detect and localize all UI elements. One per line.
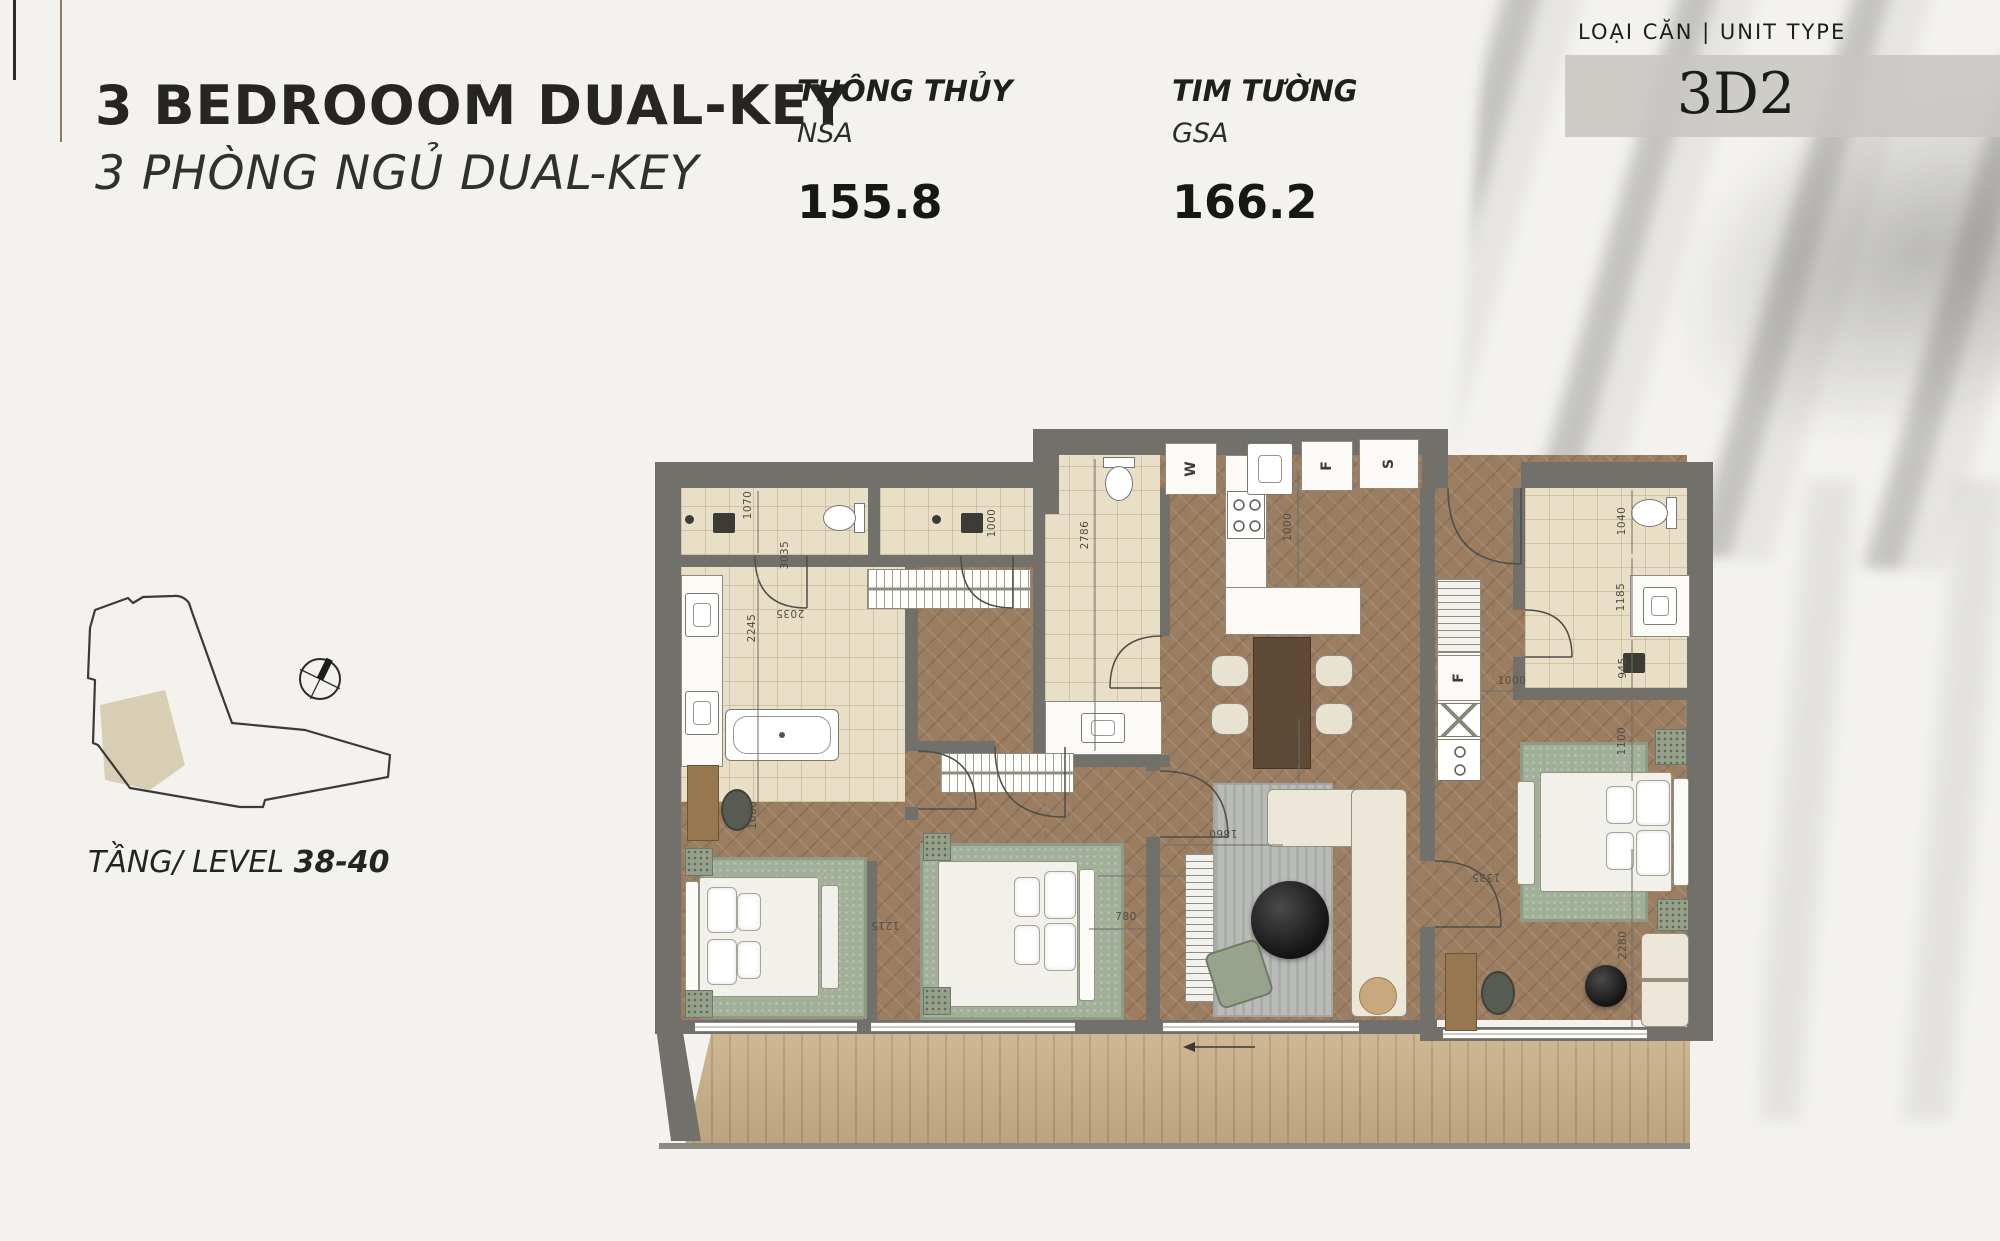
- desk: [1445, 953, 1477, 1031]
- bathtub: [725, 709, 839, 761]
- dimension-label: 2245: [746, 614, 758, 643]
- studio-fridge-label: F: [1451, 673, 1467, 683]
- pillow: [737, 941, 761, 979]
- ottoman: [1359, 977, 1397, 1015]
- balcony-railing: [659, 1143, 1690, 1149]
- metric-nsa-label: THÔNG THỦY: [797, 74, 1012, 108]
- fridge-label: F: [1319, 461, 1335, 471]
- bed-bedroom2: [938, 861, 1097, 1009]
- stove-burners: [1227, 491, 1265, 539]
- wall-bedroom2-living: [1146, 837, 1160, 1020]
- wall-bathroom3-right: [1160, 488, 1170, 636]
- toilet: [1103, 457, 1135, 501]
- sink-basin: [1643, 587, 1677, 625]
- dimension-label: 1550: [1290, 737, 1302, 766]
- sink-basin: [685, 691, 719, 735]
- bed-bedroom1: [685, 877, 839, 999]
- loveseat: [1641, 933, 1689, 1027]
- balcony-deck: [675, 1034, 1690, 1145]
- dining-chair: [1211, 703, 1249, 735]
- dimension-label: 3035: [779, 541, 791, 570]
- bathroom2-floor: [880, 488, 1033, 555]
- metric-nsa-code: NSA: [797, 118, 1012, 149]
- toilet: [1631, 497, 1677, 529]
- wall-bathroom3-left: [1033, 514, 1045, 755]
- floorplan-sheet: 3 BEDROOOM DUAL-KEY 3 PHÒNG NGỦ DUAL-KEY…: [0, 0, 2000, 1241]
- dimension-label: 780: [1115, 911, 1137, 923]
- shower-drain: [713, 513, 735, 533]
- stool: [1481, 971, 1515, 1015]
- bed-headboard: [1079, 869, 1095, 1001]
- pillow: [1044, 923, 1076, 971]
- pillow: [1014, 925, 1040, 965]
- wall-balcony-taper: [655, 1020, 701, 1141]
- decor-line-gold: [60, 0, 62, 142]
- compass-icon: [291, 650, 350, 709]
- kitchen-sink: [1247, 443, 1293, 495]
- bed-headboard: [1673, 778, 1689, 886]
- window-bedroom2: [871, 1022, 1075, 1032]
- nightstand: [1657, 899, 1689, 931]
- wall-studio-bath-left: [1513, 488, 1525, 610]
- metric-gsa-value: 166.2: [1172, 175, 1358, 229]
- window-bedroom1: [695, 1022, 857, 1032]
- pillow: [737, 893, 761, 931]
- storage-label: S: [1381, 459, 1397, 469]
- shower-head-icon: [932, 515, 941, 524]
- level-value: 38-40: [294, 845, 390, 880]
- kitchenette-burners: [1437, 739, 1481, 781]
- dimension-label: 1335: [1472, 871, 1501, 883]
- dimension-label: 1040: [1616, 507, 1628, 536]
- level-indicator: TẦNG/ LEVEL 38-40: [88, 845, 390, 880]
- metric-gsa-label: TIM TƯỜNG: [1172, 74, 1358, 108]
- nightstand: [1655, 729, 1687, 765]
- dimension-label: 2280: [1617, 931, 1629, 960]
- pillow: [1044, 871, 1076, 919]
- dimension-label: 1070: [742, 491, 754, 520]
- nightstand: [685, 990, 713, 1018]
- wall-top-left: [655, 462, 1035, 488]
- pillow: [707, 939, 737, 985]
- highlighted-unit-area: [100, 690, 185, 790]
- wall-bedroom2-top-a: [918, 741, 995, 753]
- dining-chair: [1211, 655, 1249, 687]
- kitchen-peninsula: [1225, 587, 1361, 635]
- unit-type-label: LOẠI CĂN | UNIT TYPE: [1578, 20, 1846, 44]
- bed-studio: [1540, 772, 1690, 894]
- wall-step-right: [1422, 429, 1448, 488]
- watercolor-brush-texture: [1760, 480, 2000, 1120]
- washer-label: W: [1183, 461, 1199, 476]
- dining-chair: [1315, 703, 1353, 735]
- unit-type-value: 3D2: [1661, 61, 1811, 127]
- dimension-label: 2035: [776, 607, 805, 619]
- building-keyplan: [55, 588, 400, 828]
- wall-bath-bottom: [681, 555, 1033, 567]
- wall-outer-left: [655, 462, 681, 1032]
- sink-basin: [685, 593, 719, 637]
- shower-head-icon: [685, 515, 694, 524]
- pillow: [1014, 877, 1040, 917]
- wall-dressing-stub: [905, 807, 918, 820]
- page-title: 3 BEDROOOM DUAL-KEY: [95, 74, 849, 137]
- nightstand: [923, 833, 951, 861]
- dimension-label: 1000: [986, 509, 998, 538]
- nightstand: [685, 848, 713, 876]
- page-subtitle: 3 PHÒNG NGỦ DUAL-KEY: [95, 146, 699, 201]
- wall-studio-left-lower: [1420, 927, 1435, 1029]
- pillow: [1636, 780, 1670, 826]
- coffee-table: [1251, 881, 1329, 959]
- bed-headboard: [685, 881, 699, 993]
- bed-bench: [821, 885, 839, 989]
- desk: [687, 765, 719, 841]
- dining-table: [1253, 637, 1311, 769]
- pillow: [1636, 830, 1670, 876]
- shower-drain: [961, 513, 983, 533]
- window-living: [1163, 1022, 1359, 1032]
- dimension-label: 2786: [1079, 521, 1091, 550]
- dimension-label: 1215: [871, 919, 900, 931]
- dimension-label: 1000: [1282, 513, 1294, 542]
- dimension-label: 945: [1617, 657, 1629, 679]
- kitchenette-sink: [1437, 703, 1481, 737]
- ac-ledge-shaft: [1185, 853, 1215, 1003]
- bedroom2-closet: [940, 753, 1074, 793]
- floor-plan: 1070 2245 2035 1000 2786 1000 1040 1185 …: [655, 429, 1715, 1151]
- pillow: [707, 887, 737, 933]
- level-label: TẦNG/ LEVEL: [88, 845, 294, 880]
- dimension-label: 1860: [1209, 827, 1238, 839]
- metric-gsa-code: GSA: [1172, 118, 1358, 149]
- pillow: [1606, 832, 1634, 870]
- wardrobe-closet: [867, 569, 1031, 609]
- dimension-label: 1680: [747, 801, 759, 830]
- pantry-shelves: [1437, 579, 1481, 653]
- bed-bench: [1517, 781, 1535, 885]
- side-table: [1585, 965, 1627, 1007]
- wall-bath-divider: [868, 488, 880, 555]
- dimension-label: 1185: [1615, 583, 1627, 612]
- wall-studio-left-upper: [1420, 488, 1435, 861]
- metric-gsa: TIM TƯỜNG GSA 166.2: [1172, 74, 1358, 229]
- pillow: [1606, 786, 1634, 824]
- wall-top-right: [1521, 462, 1713, 488]
- dimension-label: 1100: [1616, 727, 1628, 756]
- wall-studio-bath-bottom: [1513, 688, 1693, 700]
- metric-nsa-value: 155.8: [797, 175, 1012, 229]
- unit-type-box: 3D2: [1565, 55, 2000, 137]
- toilet: [823, 503, 865, 533]
- wall-outer-right: [1687, 462, 1713, 1041]
- dining-chair: [1315, 655, 1353, 687]
- decor-line-dark: [13, 0, 16, 80]
- nightstand: [923, 987, 951, 1015]
- sink-basin: [1081, 713, 1125, 743]
- dimension-label: 1000: [1498, 675, 1527, 687]
- metric-nsa: THÔNG THỦY NSA 155.8: [797, 74, 1012, 229]
